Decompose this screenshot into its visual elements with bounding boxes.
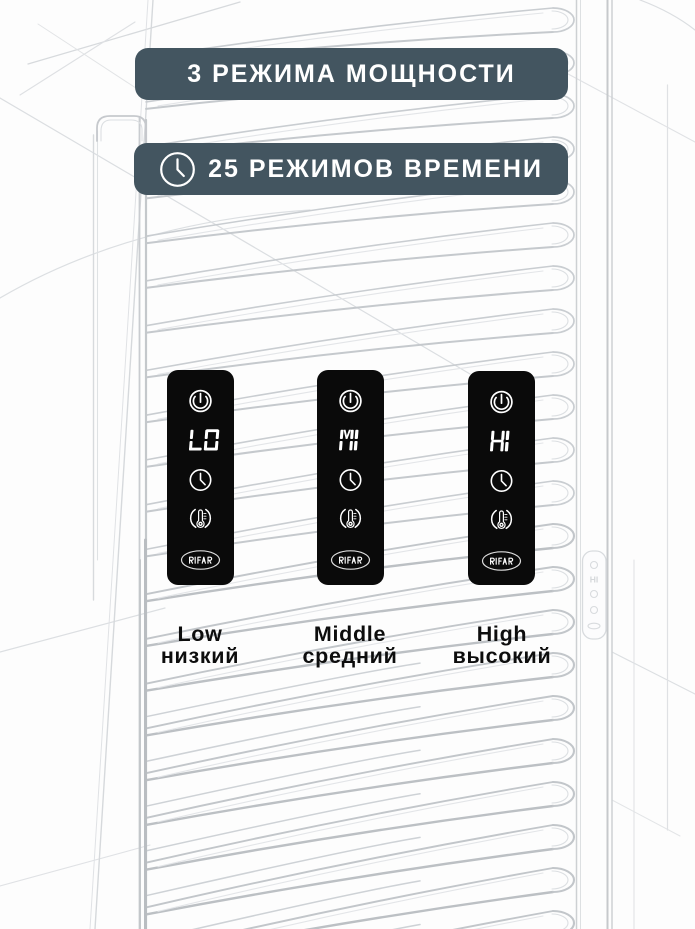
svg-text:HI: HI <box>590 575 599 585</box>
